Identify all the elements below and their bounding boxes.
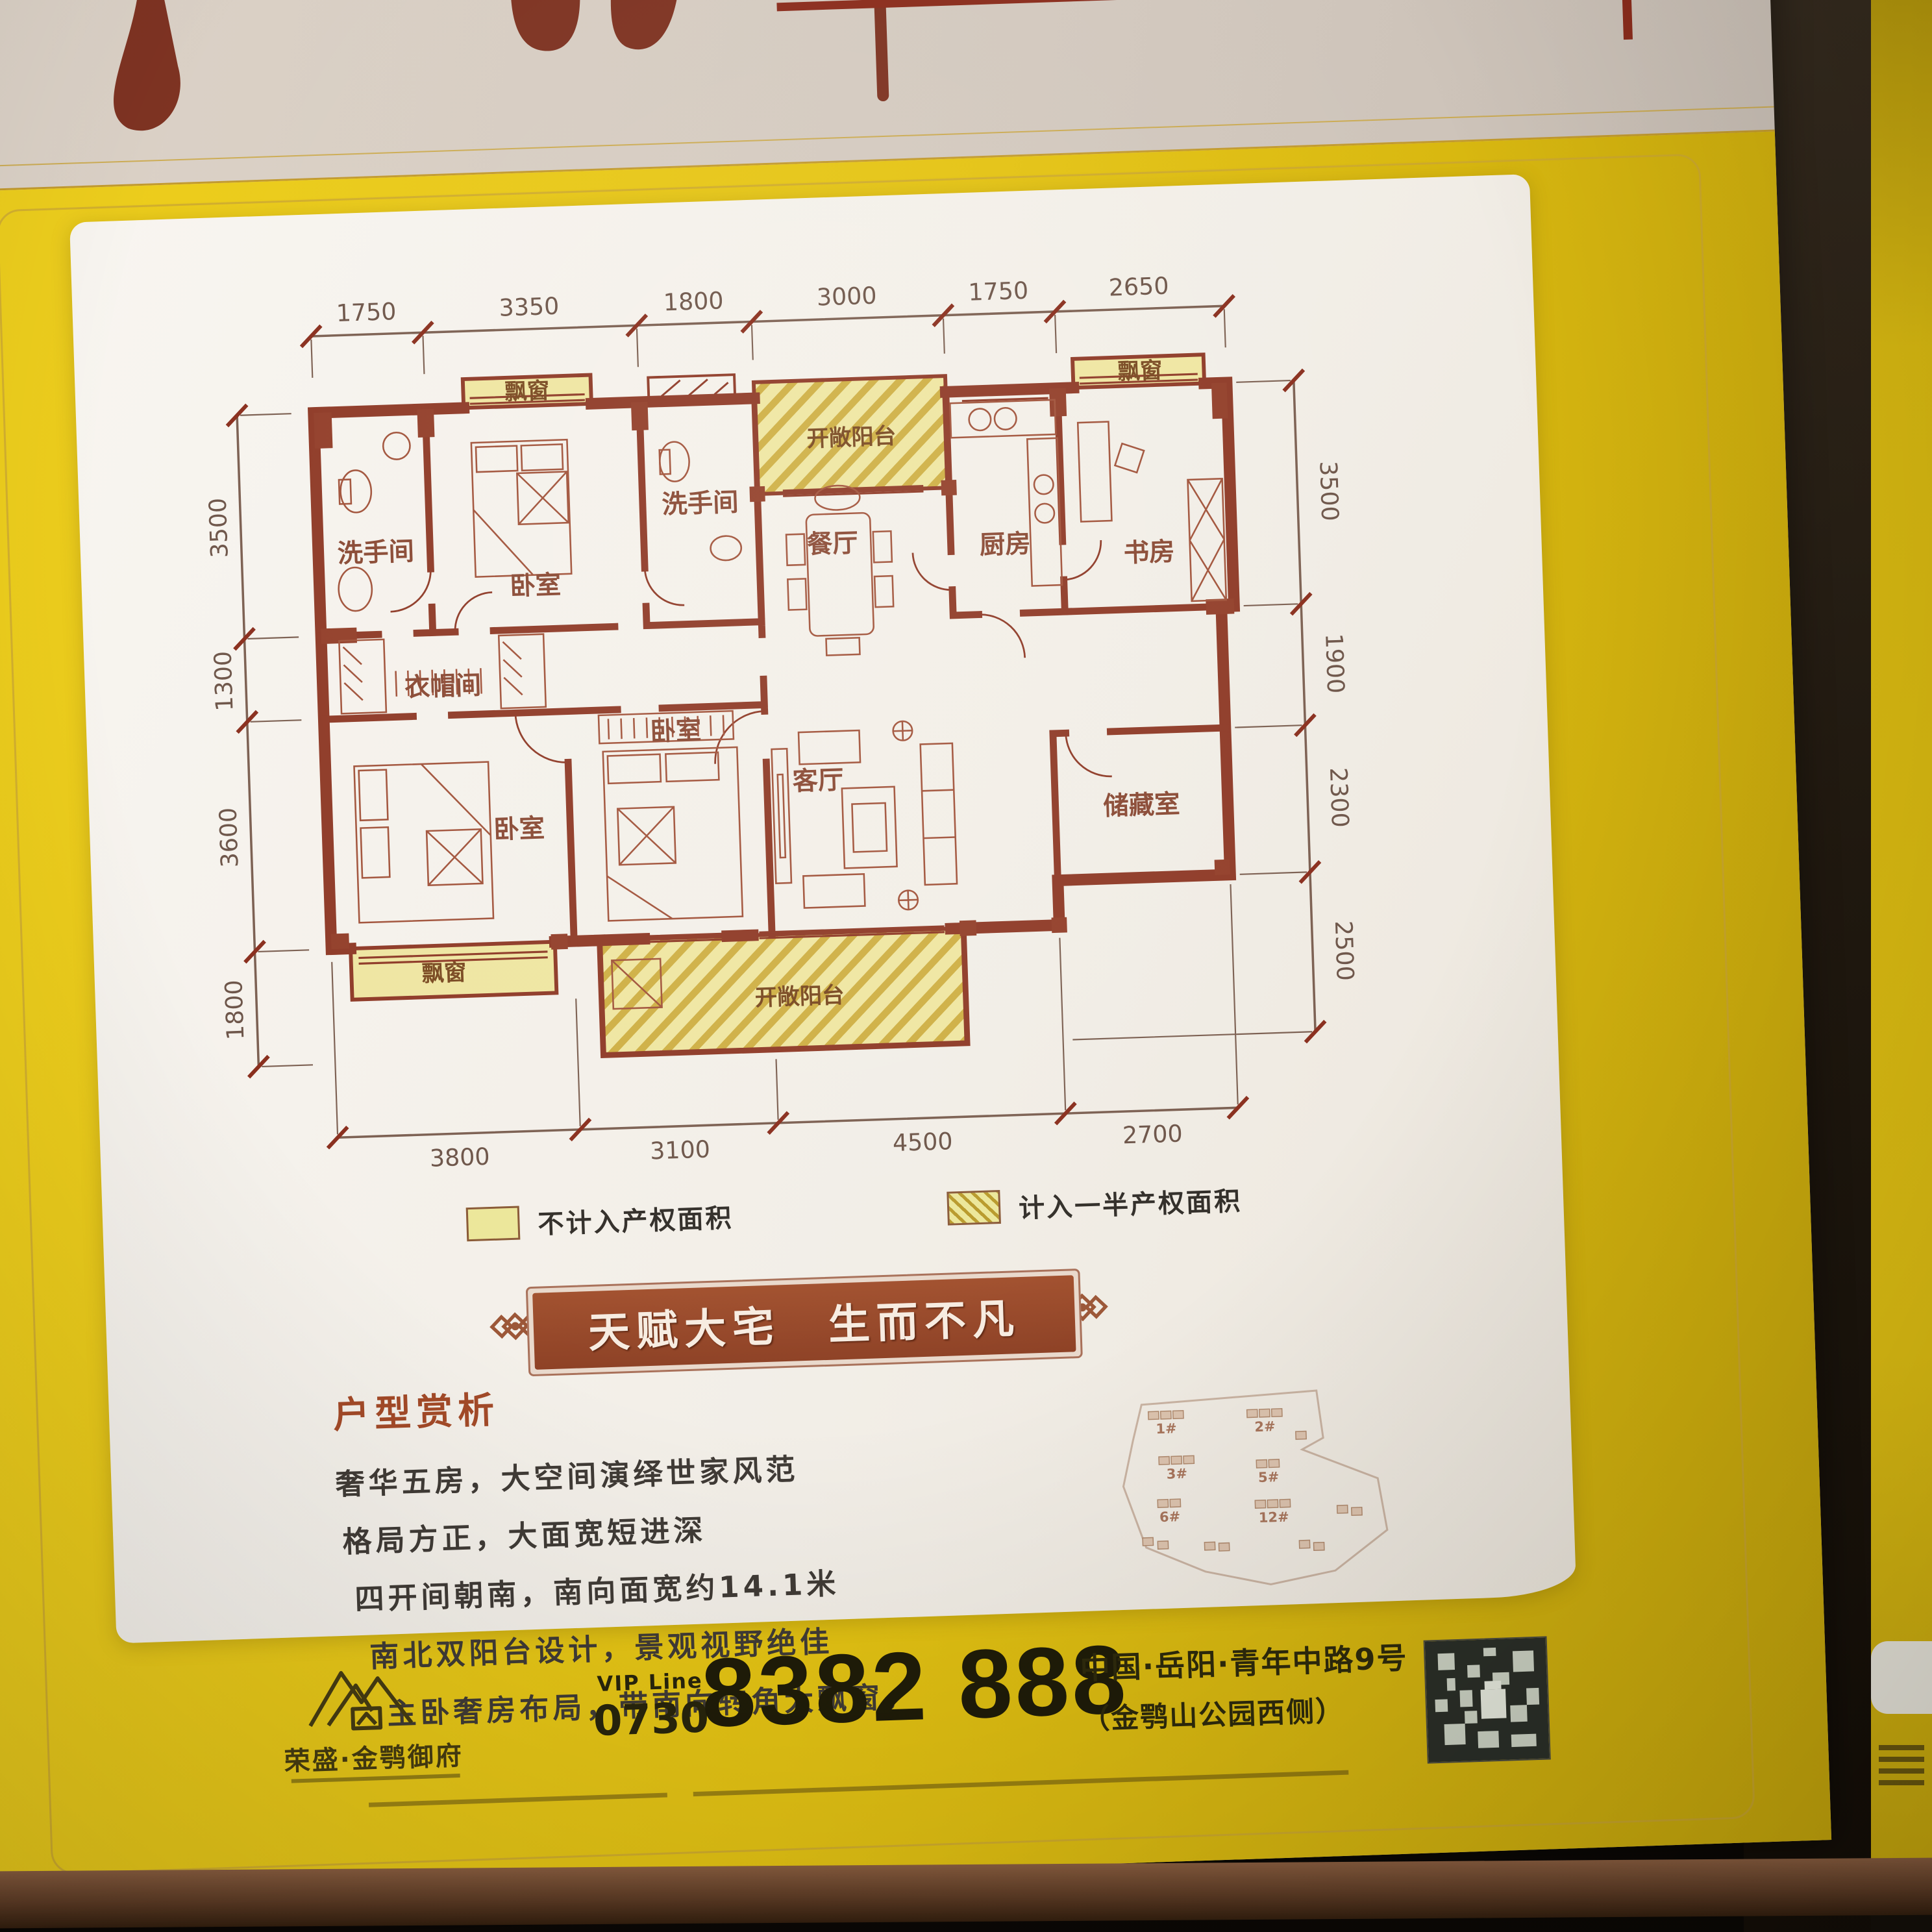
dim-label: 3600: [214, 807, 243, 868]
room-label-study: 书房: [1123, 537, 1175, 569]
qr-code: [1424, 1636, 1551, 1763]
room-label-cloakroom: 衣帽间: [404, 671, 482, 703]
address-block: 中国·岳阳·青年中路9号 （金鹗山公园西侧）: [1080, 1635, 1410, 1738]
dim-label: 3500: [204, 497, 234, 558]
phone-area-code: 0730: [593, 1694, 710, 1746]
legend-swatch-solid: [466, 1206, 521, 1242]
brand-name: 荣盛·金鹗御府: [263, 1734, 485, 1779]
vip-line-label: VIP Line: [591, 1668, 708, 1696]
room-label-bay-window: 飘窗: [1117, 358, 1163, 385]
dim-label: 1800: [219, 980, 249, 1041]
dim-label: 2700: [1122, 1119, 1183, 1149]
dim-label: 1750: [336, 297, 397, 327]
dim-label: 2650: [1108, 271, 1169, 301]
room-label-bay-window: 飘窗: [504, 378, 550, 405]
door-arcs: [389, 540, 1112, 800]
dim-label: 3800: [429, 1143, 490, 1172]
analysis-line: 奢华五房，大空间演绎世家风范: [334, 1434, 1146, 1503]
ac-platform-hatch: [661, 378, 728, 396]
dim-label: 1300: [208, 650, 238, 712]
site-building-label: 1#: [1156, 1420, 1177, 1437]
dim-label: 1750: [968, 277, 1029, 306]
slogan-text: 天赋大宅 生而不凡: [587, 1285, 1021, 1359]
dim-label: 3000: [816, 281, 877, 311]
room-label-bath: 洗手间: [662, 488, 739, 520]
dim-label: 3350: [499, 292, 560, 322]
analysis-line: 四开间朝南，南向面宽约14.1米: [354, 1550, 1150, 1618]
room-label-open-balcony: 开敞阳台: [806, 423, 897, 452]
site-building-label: 6#: [1159, 1509, 1181, 1525]
site-building-label: 2#: [1254, 1418, 1276, 1435]
room-label-bedroom: 卧室: [510, 570, 562, 602]
room-label-storage: 储藏室: [1103, 789, 1181, 821]
dim-label: 3100: [650, 1135, 711, 1165]
photo-scene: 飘窗 飘窗 飘窗 开敞阳台 开敞阳台 洗手间 洗手间 卧室 餐厅 厨房 书房 衣…: [0, 0, 1932, 1932]
room-label-bay-window: 飘窗: [421, 960, 467, 987]
room-label-open-balcony: 开敞阳台: [754, 982, 845, 1011]
site-building-label: 3#: [1166, 1466, 1187, 1482]
content-panel: 飘窗 飘窗 飘窗 开敞阳台 开敞阳台 洗手间 洗手间 卧室 餐厅 厨房 书房 衣…: [69, 174, 1576, 1643]
dim-label: 1800: [663, 286, 724, 316]
room-label-living: 客厅: [792, 765, 844, 797]
calligraphy-strokes: [0, 0, 1774, 156]
analysis-title: 户型赏析: [332, 1359, 1145, 1439]
phone-number: 8382 888: [700, 1623, 1130, 1750]
floor-plan: 飘窗 飘窗 飘窗 开敞阳台 开敞阳台 洗手间 洗手间 卧室 餐厅 厨房 书房 衣…: [156, 245, 1387, 1203]
site-building-label: 5#: [1258, 1469, 1280, 1485]
dim-label: 3500: [1314, 460, 1344, 521]
dim-label: 4500: [892, 1127, 953, 1157]
room-label-dining: 餐厅: [806, 528, 858, 560]
site-plan-map: 1# 2# 3# 5# 6# 12#: [1102, 1374, 1407, 1604]
room-label-bath: 洗手间: [337, 536, 415, 569]
analysis-line: 格局方正，大面宽短进深: [341, 1492, 1148, 1561]
slogan-banner: 天赋大宅 生而不凡: [526, 1269, 1083, 1376]
legend-label: 不计入产权面积: [538, 1197, 734, 1241]
dim-label: 1900: [1320, 633, 1350, 694]
site-building-label: 12#: [1258, 1509, 1289, 1526]
floorplan-poster: 飘窗 飘窗 飘窗 开敞阳台 开敞阳台 洗手间 洗手间 卧室 餐厅 厨房 书房 衣…: [0, 0, 1831, 1901]
room-label-kitchen: 厨房: [979, 528, 1031, 560]
room-label-bedroom: 卧室: [650, 715, 702, 747]
dim-label: 2300: [1324, 767, 1354, 828]
room-label-bedroom: 卧室: [493, 813, 545, 845]
dim-label: 2500: [1330, 921, 1359, 982]
adjacent-poster-logo: [1879, 1745, 1924, 1787]
brand-logo-icon: [300, 1649, 432, 1735]
legend-label: 计入一半产权面积: [1018, 1180, 1243, 1225]
legend-swatch-hatched: [947, 1190, 1001, 1226]
vip-line-block: VIP Line 0730: [591, 1668, 710, 1746]
adjacent-poster: [1871, 0, 1932, 1932]
adjacent-poster-panel: [1871, 1641, 1932, 1714]
